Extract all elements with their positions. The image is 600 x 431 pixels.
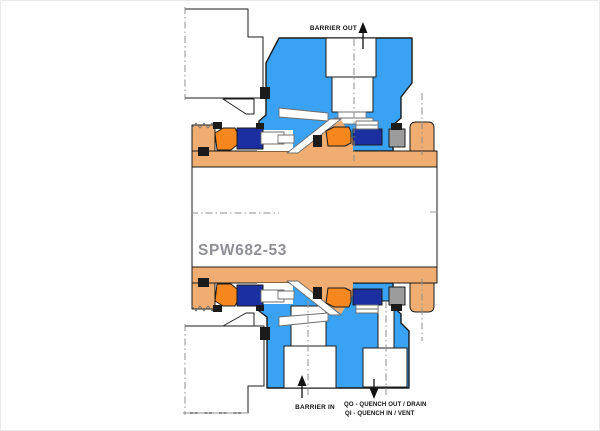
lower-outboard-seal-ring (353, 289, 382, 305)
barrier-out-port-outer (326, 38, 376, 77)
upper-chamber-wall (185, 9, 263, 98)
upper-mid-o-ring (313, 135, 322, 147)
barrier-in-port-outer (284, 346, 336, 388)
lower-outboard-driver (326, 288, 351, 307)
upper-flange-o-ring (213, 122, 222, 129)
lower-set-screw-cap (391, 304, 402, 311)
lower-sleeve-band (192, 267, 437, 283)
lower-spring-inner (278, 291, 294, 299)
upper-set-screw-cap (391, 123, 402, 130)
upper-sleeve-o-ring (198, 147, 209, 156)
quench-port-outer (363, 348, 407, 387)
mechanical-seal-cross-section: BARRIER OUT BARRIER IN QO - QUENCH OUT /… (1, 1, 600, 431)
lower-set-screw-block (389, 287, 405, 305)
upper-outboard-driver (326, 127, 351, 146)
lower-sleeve-o-ring (198, 278, 209, 287)
lower-chamber-head (223, 313, 254, 326)
lower-ring-o-ring (256, 305, 264, 311)
upper-ring-o-ring (256, 123, 264, 129)
upper-chamber-foot (223, 99, 254, 114)
lower-wall-gasket (260, 327, 270, 340)
lower-flange-o-ring (213, 305, 222, 312)
upper-inboard-driver (215, 128, 237, 150)
quench-label-line2: QI - QUENCH IN / VENT (345, 410, 415, 417)
lower-mid-o-ring (313, 287, 322, 299)
part-number: SPW682-53 (198, 242, 287, 259)
lower-inboard-driver (215, 284, 237, 306)
mechanical-seal-diagram: BARRIER OUT BARRIER IN QO - QUENCH OUT /… (0, 0, 600, 431)
barrier-in-label: BARRIER IN (295, 404, 335, 411)
lower-chamber-wall (185, 326, 264, 413)
upper-sleeve-band (192, 151, 437, 167)
upper-outboard-seal-ring (353, 129, 382, 145)
upper-spring-inner (278, 135, 294, 143)
upper-inboard-seal-ring (237, 128, 263, 149)
lower-inboard-seal-ring (237, 285, 263, 306)
barrier-out-port-mid (332, 77, 373, 112)
quench-label-line1: QO - QUENCH OUT / DRAIN (344, 401, 427, 408)
upper-wall-gasket (260, 87, 270, 99)
barrier-out-label: BARRIER OUT (310, 25, 357, 32)
upper-set-screw-block (389, 129, 405, 147)
